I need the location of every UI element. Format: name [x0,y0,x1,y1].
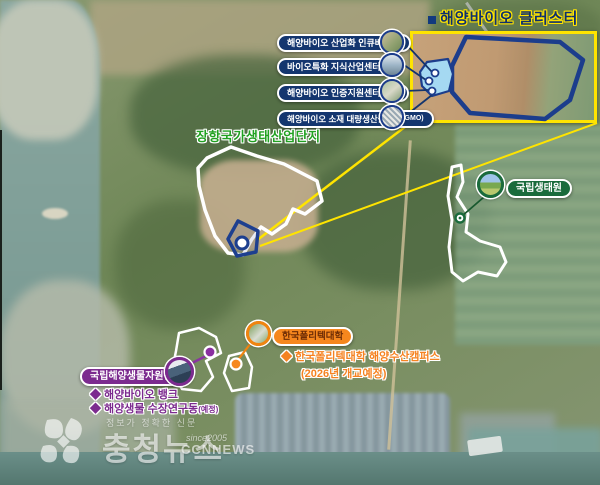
mabik-note-line1: ◆ 해양바이오 뱅크 [90,390,178,401]
left-edge-strip [0,130,2,390]
mudflat-topleft [0,0,98,140]
pill-mabik-label: 국립해양생물자원관 [90,372,173,382]
photo-incubator [380,30,404,54]
cluster-site-marker [236,237,248,249]
pill-certification-label: 해양바이오 인증지원센터 [287,89,381,98]
sea-left [0,0,100,485]
flower-petal-3 [41,445,57,462]
pill-knowledge-label: 바이오특화 지식산업센터 [287,63,381,72]
pill-ecology-label: 국립생태원 [516,184,562,194]
pill-ecology: 국립생태원 [506,179,572,198]
photo-certification-center [380,79,404,103]
connector-mabik [192,355,208,363]
photo-gmo-plant [380,105,404,129]
pill-polytech-label: 한국폴리텍대학 [282,332,343,342]
cluster-inset-box [410,31,597,123]
urban-area-right [460,413,555,461]
polytech-note-line2: (2026년 개교예정) [301,369,386,380]
photo-mabik [165,357,194,386]
road-center [387,140,412,449]
janghang-boundary [198,147,322,255]
connector-ecology [462,197,484,216]
urban-area-bottom [235,393,450,463]
connector-polytech [237,343,251,361]
photo-knowledge-center [380,53,404,77]
watermark-flower-icon [33,414,99,468]
watermark-brand: CCNNEWS [181,442,255,457]
photo-ecology [477,171,504,198]
map-title: 해양바이오 클러스터 [440,11,578,26]
flower-petal-1 [45,419,63,438]
mabik-note-line2-suffix: (예정) [198,405,218,414]
pill-gmo-plant: 해양바이오 소재 대량생산플랜트 (GMO) [277,110,434,128]
flower-petal-2 [65,418,82,440]
flower-petal-4 [63,446,80,463]
mabik-note-line2: ◆ 해양생물 수장연구동(예정) [90,404,218,415]
mabik-marker [205,347,216,358]
pill-polytech: 한국폴리텍대학 [272,327,353,346]
ecology-marker [456,214,465,223]
forest-patch-2 [300,150,490,290]
janghang-construction-area [200,160,318,252]
pill-knowledge-center: 바이오특화 지식산업센터 [277,58,392,76]
water-bottom-right [468,428,600,485]
forest-patch-3 [115,200,245,330]
pill-gmo-suffix: (GMO) [402,115,423,122]
title-bullet-square [428,16,436,24]
ecology-marker-dot [459,217,462,220]
farmland-right-grid [455,125,600,345]
port-structure [467,436,503,457]
polytech-note-line1: ◆ 한국폴리텍대학 해양수산캠퍼스 [281,352,440,363]
polytech-boundary [224,352,252,391]
polytech-marker [231,359,242,370]
mabik-note-line2-text: ◆ 해양생물 수장연구동 [90,403,198,415]
sand-islet [42,208,68,219]
janghang-label: 장항국가생태산업단지 [196,130,321,143]
satellite-map-infographic: 해양바이오 클러스터 해양바이오 산업화 인큐베이터 바이오특화 지식산업센터 … [0,0,600,485]
cluster-site-outline [228,221,258,256]
photo-polytech [246,321,271,346]
